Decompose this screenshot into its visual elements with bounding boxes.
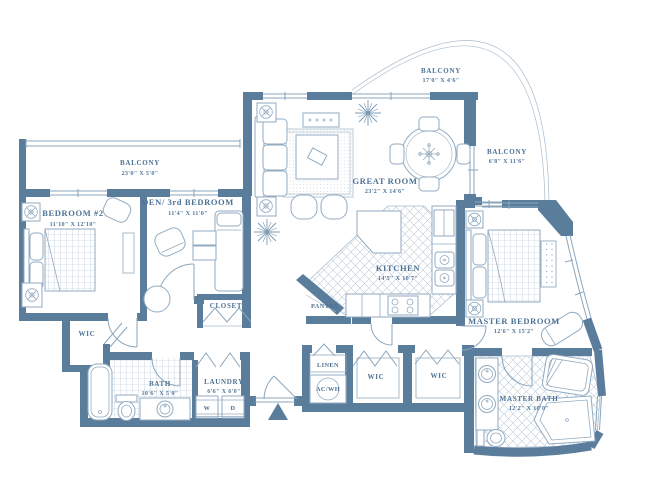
room-dims-den: 11'4" X 11'0": [168, 210, 208, 217]
room-label-wic2: WIC: [431, 372, 448, 380]
dining-chair: [419, 177, 439, 191]
room-label-wic1: WIC: [368, 373, 385, 381]
den-armchair: [152, 225, 187, 258]
dresser: [541, 241, 556, 287]
master-pillow: [473, 234, 486, 265]
linen-bifold: [313, 344, 335, 356]
side-table: [193, 246, 216, 260]
bedroom2-chair: [101, 195, 133, 224]
room-label-kitchen: KITCHEN: [376, 263, 421, 273]
room-label-linen: LINEN: [317, 362, 339, 369]
room-label-master-bath: MASTER BATH: [500, 395, 559, 403]
room-label-pantry: PANTRY: [311, 303, 339, 310]
tub-chair: [321, 195, 347, 219]
room-dims-great-room: 23'2" X 14'6": [365, 188, 405, 195]
dining-chair: [390, 144, 404, 164]
sofa-cushion: [263, 119, 287, 144]
floor-plan-page: BALCONY 23'0" X 5'0" BEDROOM #2 11'10" X…: [0, 0, 654, 500]
master-pillow: [473, 267, 486, 298]
room-label-great-room: GREAT ROOM: [353, 176, 418, 186]
washer-label: W: [204, 405, 211, 412]
chaise: [538, 309, 586, 349]
floor-plan-drawing: BALCONY 23'0" X 5'0" BEDROOM #2 11'10" X…: [0, 0, 654, 500]
sink: [157, 401, 173, 417]
room-dims-balcony-top: 17'0" X 4'6": [423, 77, 460, 84]
sink: [479, 366, 496, 383]
room-dims-laundry: 6'6" X 6'0": [207, 388, 241, 395]
dining-chair: [457, 144, 470, 164]
wic2-bifold: [415, 350, 459, 364]
room-dims-kitchen: 14'5" X 10'7": [378, 275, 418, 282]
dining-chair: [419, 117, 439, 131]
room-label-master-bedroom: MASTER BEDROOM: [468, 316, 560, 326]
master-blanket: [488, 230, 540, 302]
room-label-bedroom2: BEDROOM #2: [42, 208, 104, 218]
laundry-bifold: [196, 353, 216, 367]
toilet: [116, 395, 137, 421]
laundry-bifold2: [220, 353, 240, 367]
bed2-headboard: [24, 229, 29, 291]
corner-tub: [541, 353, 593, 396]
sink: [479, 396, 496, 413]
room-dims-bedroom2: 11'10" X 12'10": [50, 221, 97, 228]
tub-chair: [291, 195, 317, 219]
room-dims-balcony-right: 6'8" X 11'6": [489, 158, 526, 165]
room-label-closet: CLOSET: [210, 302, 243, 310]
master-toilet: [477, 430, 505, 447]
sofa-cushion: [263, 145, 287, 170]
room-label-balcony-left: BALCONY: [120, 159, 160, 167]
stove: [388, 296, 418, 315]
room-label-wic-bedroom2: WIC: [79, 330, 96, 338]
bed2-pillow: [30, 233, 43, 260]
room-label-ac-wh: AC/WH: [316, 386, 340, 393]
daybed-pillow: [217, 213, 241, 226]
hallway-door: [371, 324, 392, 345]
sofa-cushion: [263, 171, 287, 196]
console-table: [303, 113, 339, 127]
room-label-den: DEN/ 3rd BEDROOM: [142, 197, 234, 207]
bedroom2-door-panel: [123, 233, 134, 273]
room-label-bath: BATH: [149, 380, 171, 388]
entry-door: [264, 376, 297, 399]
room-dims-balcony-left: 23'0" X 5'0": [122, 170, 159, 177]
side-table: [193, 231, 216, 245]
room-dims-master-bath: 12'2" X 10'0": [509, 405, 549, 412]
room-label-laundry: LAUNDRY: [204, 378, 244, 386]
room-dims-master-bedroom: 12'6" X 15'2": [494, 328, 534, 335]
entry-arrow: [268, 403, 288, 420]
room-label-balcony-top: BALCONY: [421, 67, 461, 75]
master-headboard: [466, 230, 471, 302]
room-dims-bath: 10'6" X 5'0": [142, 390, 179, 397]
bathtub: [88, 364, 112, 420]
wic1-bifold: [353, 351, 397, 366]
dryer-label: D: [231, 405, 236, 412]
room-label-balcony-right: BALCONY: [487, 148, 527, 156]
